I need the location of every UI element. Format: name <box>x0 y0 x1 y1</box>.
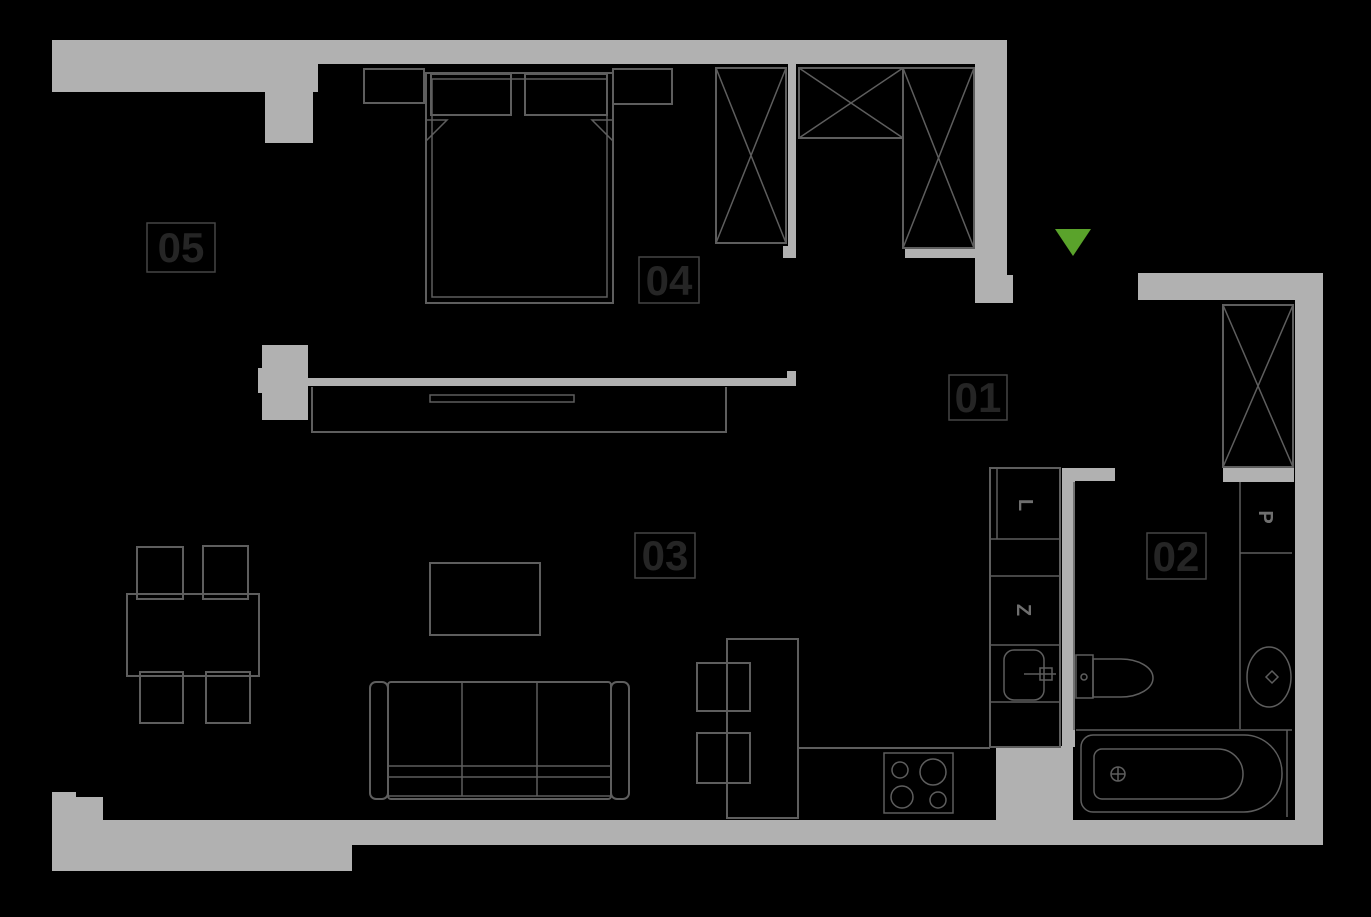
room-label-text: 04 <box>646 257 693 304</box>
wall-pillar-notch <box>258 368 262 393</box>
wall-divider-end-tab <box>787 371 796 378</box>
wall-pillar <box>262 345 308 420</box>
sofa <box>370 682 629 799</box>
kitchen-island <box>727 639 798 818</box>
room-label-02: 02 <box>1147 533 1206 580</box>
sofa-armrest-right <box>611 682 629 799</box>
wall-bottom-thick <box>103 820 352 871</box>
wall-closet-left-foot <box>783 246 796 258</box>
toilet-button <box>1081 674 1087 680</box>
dining-table <box>127 594 259 676</box>
bed-frame <box>426 73 613 303</box>
wardrobe <box>716 68 786 243</box>
room-label-text: 01 <box>955 374 1002 421</box>
closet-shelf <box>905 248 975 258</box>
toilet <box>1076 655 1153 698</box>
chair <box>140 672 183 723</box>
room-label-text: 02 <box>1153 533 1200 580</box>
chair <box>206 672 250 723</box>
bed-mattress <box>432 79 607 297</box>
burner-circle <box>891 786 913 808</box>
wall-closet-right-base <box>975 275 1013 303</box>
stove <box>884 753 953 813</box>
wall-kitchen-bath-divider <box>1062 468 1075 747</box>
wall-closet-left <box>788 64 796 258</box>
entrance-arrow-icon <box>1055 229 1091 256</box>
wardrobe-cross <box>716 68 786 243</box>
wardrobe <box>799 68 903 138</box>
stool <box>697 663 750 711</box>
wall-bath-top-piece <box>1223 468 1294 482</box>
fridge-letter: L <box>1014 499 1036 511</box>
kitchen-sink <box>1004 650 1044 700</box>
burner-circle <box>920 759 946 785</box>
sideboard <box>312 387 726 432</box>
chair <box>203 546 248 599</box>
nightstand-left <box>364 69 424 103</box>
living-room-furniture <box>127 387 726 799</box>
dishwasher-letter: Z <box>1012 604 1034 616</box>
wall-top <box>318 40 1007 64</box>
wall-column-bedroom <box>265 92 313 143</box>
wall-bath-door-tab <box>1075 468 1115 481</box>
room-label-04: 04 <box>639 257 699 304</box>
bathtub <box>1081 735 1282 812</box>
wardrobe-cross <box>903 68 974 248</box>
basin-drain <box>1266 671 1278 683</box>
basin-bowl <box>1247 647 1291 707</box>
pillow-left <box>431 74 511 115</box>
sofa-cushion-lines <box>388 682 611 796</box>
coffee-table <box>430 563 540 635</box>
room-label-01: 01 <box>949 374 1007 421</box>
pillow-right <box>525 74 607 115</box>
wardrobe-cross <box>799 68 903 138</box>
washer-letter: P <box>1254 510 1276 523</box>
tv <box>430 395 574 402</box>
room-label-text: 03 <box>642 532 689 579</box>
dining-set <box>127 546 259 723</box>
wardrobe-cross <box>1223 305 1293 467</box>
wardrobe <box>903 68 974 248</box>
appliance-letters: L Z P <box>1012 499 1276 616</box>
wall-closet-right <box>975 64 1007 275</box>
stool <box>697 733 750 783</box>
wall-bottom <box>352 820 1323 845</box>
burner-circle <box>930 792 946 808</box>
room-label-03: 03 <box>635 532 695 579</box>
washbasin <box>1247 647 1291 707</box>
wall-top-left <box>52 40 318 92</box>
toilet-bowl <box>1093 659 1153 697</box>
chair <box>137 547 183 599</box>
hall-furniture <box>1223 305 1293 467</box>
nightstand-right <box>613 69 672 104</box>
floor-plan: L Z P 01 02 03 04 05 <box>0 0 1371 917</box>
floor-plan-svg: L Z P 01 02 03 04 05 <box>0 0 1371 917</box>
wall-bedroom-hall-divider <box>308 378 796 386</box>
blanket-fold-left <box>426 120 447 141</box>
walls <box>52 40 1323 871</box>
wardrobe <box>1223 305 1293 467</box>
room-label-text: 05 <box>158 224 205 271</box>
sofa-body <box>388 682 611 799</box>
wall-bottom-left-notch <box>52 792 76 798</box>
room-label-05: 05 <box>147 223 215 272</box>
sofa-armrest-left <box>370 682 388 799</box>
burner-circle <box>892 762 908 778</box>
blanket-fold-right <box>592 120 613 141</box>
wall-right <box>1295 273 1323 845</box>
wall-bottom-left-block <box>52 797 103 871</box>
toilet-cistern <box>1076 655 1093 698</box>
